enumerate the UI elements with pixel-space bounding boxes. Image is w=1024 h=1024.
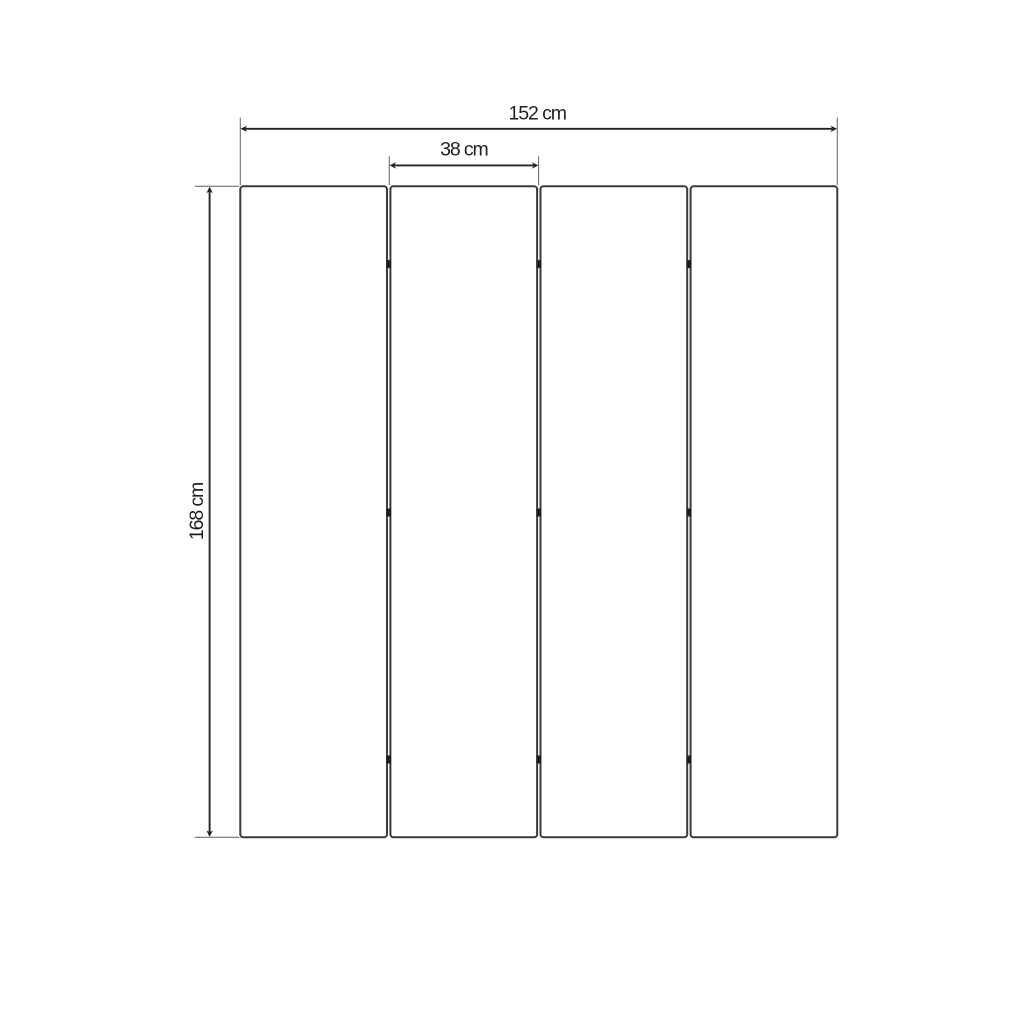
svg-text:152 cm: 152 cm (509, 103, 566, 125)
svg-text:38 cm: 38 cm (440, 138, 488, 160)
svg-text:168 cm: 168 cm (186, 483, 208, 540)
